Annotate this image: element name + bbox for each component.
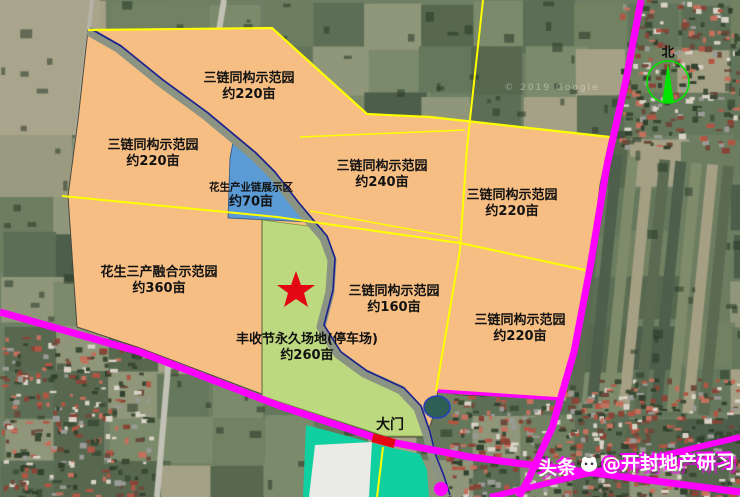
zone-name: 丰收节永久场地(停车场) [236,332,378,348]
watermark-handle: @开封地产研习 [602,447,735,476]
zone-name: 三链同构示范园 [107,138,198,154]
zone-name: 花生产业链展示区 [209,181,293,194]
watermark: 头条 @开封地产研习 [538,444,736,480]
compass-needle-icon [662,62,674,103]
compass-north-label: 北 [661,42,674,61]
overlay-layer [0,0,740,497]
zone-name: 三链同构示范园 [474,313,565,329]
zone-area: 约260亩 [236,348,378,364]
zone-label-middle: 三链同构示范园 约240亩 [336,159,427,192]
zone-label-peanut-chain: 花生产业链展示区 约70亩 [209,181,293,210]
compass [647,61,689,103]
zone-label-top: 三链同构示范园 约220亩 [203,71,294,104]
zone-area: 约240亩 [336,175,427,191]
zone-name: 三链同构示范园 [348,284,439,300]
pond [424,396,450,418]
zone-name: 花生三产融合示范园 [100,265,217,281]
zone-name: 三链同构示范园 [466,188,557,204]
zone-area: 约160亩 [348,300,439,316]
zone-area: 约220亩 [203,87,294,103]
gate-label: 大门 [376,414,404,434]
watermark-brand: 头条 [538,453,576,481]
zone-area: 约360亩 [100,281,217,297]
zone-label-integration: 花生三产融合示范园 约360亩 [100,265,217,298]
zone-label-left: 三链同构示范园 约220亩 [107,138,198,171]
zone-area: 约70亩 [209,194,293,210]
zone-area: 约220亩 [107,154,198,170]
zone-name: 三链同构示范园 [336,159,427,175]
zone-label-right-top: 三链同构示范园 约220亩 [466,188,557,221]
magenta-dot-marker [434,482,448,496]
zone-label-right-bottom: 三链同构示范园 约220亩 [474,313,565,346]
zone-area: 约220亩 [474,329,565,345]
zone-label-mid-bottom: 三链同构示范园 约160亩 [348,284,439,317]
zone-name: 三链同构示范园 [203,71,294,87]
building-pad [309,442,372,497]
planning-map: 三链同构示范园 约220亩 三链同构示范园 约220亩 花生产业链展示区 约70… [0,0,740,497]
toutiao-logo-icon [579,454,599,472]
satellite-credit: © 2019 Google [504,83,599,93]
zone-label-harvest: 丰收节永久场地(停车场) 约260亩 [236,332,378,365]
zone-area: 约220亩 [466,204,557,220]
